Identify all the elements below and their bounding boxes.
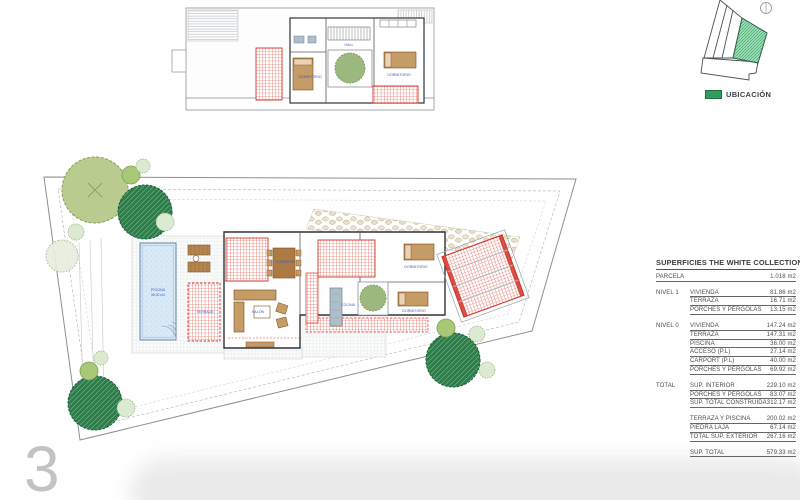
upper-hall-label: HALL [345, 43, 354, 47]
courtyard-tree-upper [335, 53, 365, 83]
sketch-tree-left [46, 240, 78, 272]
dark-tree-3 [426, 333, 480, 387]
pergola-level1-west [256, 48, 282, 100]
ubicacion-swatch [705, 90, 722, 99]
living-label: SALÓN [252, 309, 265, 314]
table-row: TERRAZA 16.71 m2 [656, 297, 796, 306]
areas-table: SUPERFICIES THE WHITE COLLECTION PARCELA… [656, 259, 796, 457]
table-row: TOTAL SUP. EXTERIOR 267.16 m2 [656, 433, 796, 442]
bath-fixture-1 [294, 36, 304, 43]
bush-3 [156, 213, 174, 231]
pergola-north-east [318, 240, 375, 277]
small-tree-2 [80, 362, 98, 380]
areas-table-title: SUPERFICIES THE WHITE COLLECTION [656, 259, 796, 270]
pergola-north-west [226, 238, 268, 281]
bush-4 [94, 351, 108, 365]
south-terrace-step [224, 348, 302, 359]
table-row: PORCHES Y PÉRGOLAS 83.07 m2 [656, 391, 796, 400]
side-table [193, 256, 199, 262]
north-indicator [761, 3, 772, 14]
table-row: TOTAL SUP. INTERIOR 229.10 m2 [656, 382, 796, 391]
bath-fixture-2 [308, 36, 316, 43]
courtyard-level0 [358, 282, 388, 315]
table-row: PISCINA 36.00 m2 [656, 340, 796, 349]
bush-2 [68, 224, 84, 240]
pool-area-label: 36.00 m2 [151, 293, 165, 297]
table-row: PIEDRA LAJA 67.14 m2 [656, 424, 796, 433]
bedroom-a-label: DORMITORIO [404, 265, 427, 269]
table-row: PORCHES Y PÉRGOLAS 69.92 m2 [656, 366, 796, 375]
table-row: SUP. TOTAL 579.33 m2 [656, 449, 796, 458]
bedroom-b-label: DORMITORIO [402, 309, 425, 313]
table-row: TERRAZA 147.31 m2 [656, 331, 796, 340]
courtyard-level1 [328, 50, 372, 87]
terrace-label: TERRAZA [197, 310, 214, 314]
sofa-side [234, 302, 244, 332]
sideboard [246, 342, 274, 347]
drawing-sheet: PISCINA 36.00 m2 [0, 0, 800, 500]
bush-1 [136, 159, 150, 173]
table-row: NIVEL 0 VIVIENDA 147.24 m2 [656, 322, 796, 331]
pergola-level1-south [373, 86, 418, 103]
upper-floor-plan: DORMITORIO DORMITORIO HALL [172, 8, 434, 110]
pool-label: PISCINA [151, 288, 166, 292]
site-plan: PISCINA 36.00 m2 [44, 157, 576, 440]
location-map [701, 0, 772, 80]
upper-bedroom-a-label: DORMITORIO [298, 75, 321, 79]
stair-strip [306, 273, 318, 323]
table-row: TERRAZA Y PISCINA 200.02 m2 [656, 415, 796, 424]
kitchen-label: COCINA [341, 303, 356, 307]
bush-7 [479, 362, 495, 378]
table-row: PARCELA 1.018 m2 [656, 273, 796, 282]
location-legend: UBICACIÓN [705, 90, 771, 99]
courtyard-tree [360, 285, 386, 311]
bush-6 [469, 326, 485, 342]
porch-south [306, 318, 428, 332]
dining-label: COMEDOR [276, 260, 295, 264]
kitchen-island [330, 288, 342, 326]
small-tree-3 [437, 319, 455, 337]
bush-5 [117, 399, 135, 417]
dark-tree-2 [68, 376, 122, 430]
swimming-pool: PISCINA 36.00 m2 [140, 243, 176, 340]
ubicacion-label: UBICACIÓN [726, 90, 771, 99]
stairs [328, 27, 370, 40]
roof-hatch-nw [188, 10, 238, 41]
table-row: ACCESO (P.L) 27.14 m2 [656, 348, 796, 357]
sheet-number: 3 [24, 437, 60, 500]
upper-bedroom-b-label: DORMITORIO [387, 73, 410, 77]
table-row: SUP. TOTAL CONSTRUIDA 312.17 m2 [656, 399, 796, 408]
sofa-top [234, 290, 276, 300]
table-row: PORCHES Y PÉRGOLAS 13.15 m2 [656, 306, 796, 315]
table-row: CARPORT (P.L) 40.00 m2 [656, 357, 796, 366]
roof-left-notch [172, 50, 186, 72]
table-row: NIVEL 1 VIVIENDA 81.86 m2 [656, 289, 796, 298]
